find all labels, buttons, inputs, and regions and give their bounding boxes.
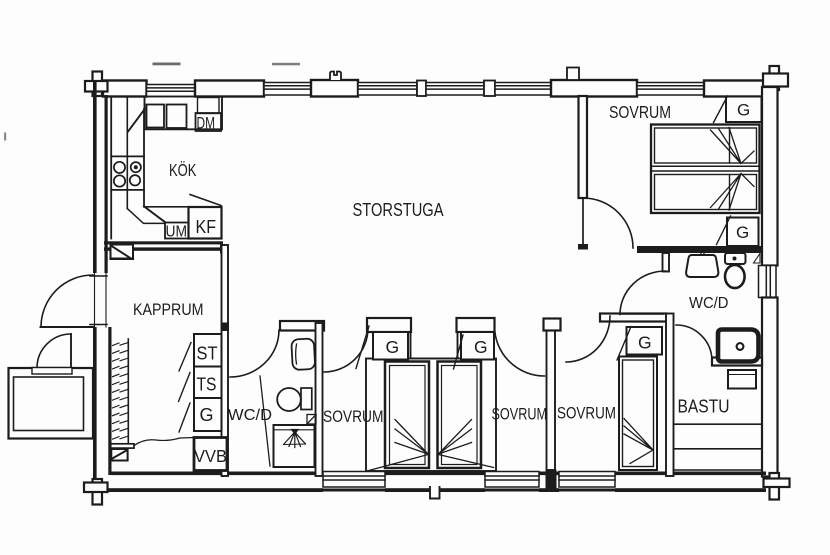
svg-text:G: G: [200, 405, 214, 425]
svg-text:G: G: [736, 223, 749, 242]
svg-text:BASTU: BASTU: [678, 397, 730, 417]
svg-text:ST: ST: [197, 344, 218, 364]
svg-text:KÖK: KÖK: [169, 160, 197, 180]
svg-text:G: G: [737, 101, 750, 120]
svg-text:SOVRUM: SOVRUM: [492, 405, 548, 424]
svg-text:KF: KF: [196, 217, 217, 237]
svg-text:KAPPRUM: KAPPRUM: [133, 300, 204, 319]
svg-text:STORSTUGA: STORSTUGA: [353, 200, 444, 220]
svg-text:UM: UM: [166, 224, 188, 241]
svg-text:G: G: [474, 337, 488, 357]
svg-text:DM: DM: [197, 115, 216, 133]
svg-text:G: G: [386, 337, 400, 357]
svg-text:WC/D: WC/D: [228, 407, 272, 424]
svg-text:TS: TS: [197, 375, 217, 395]
svg-text:WC/D: WC/D: [689, 295, 729, 312]
svg-text:VVB: VVB: [194, 446, 227, 466]
svg-text:G: G: [638, 333, 652, 353]
svg-text:SOVRUM: SOVRUM: [323, 407, 384, 426]
svg-text:SOVRUM: SOVRUM: [609, 102, 671, 122]
svg-text:SOVRUM: SOVRUM: [557, 404, 616, 423]
